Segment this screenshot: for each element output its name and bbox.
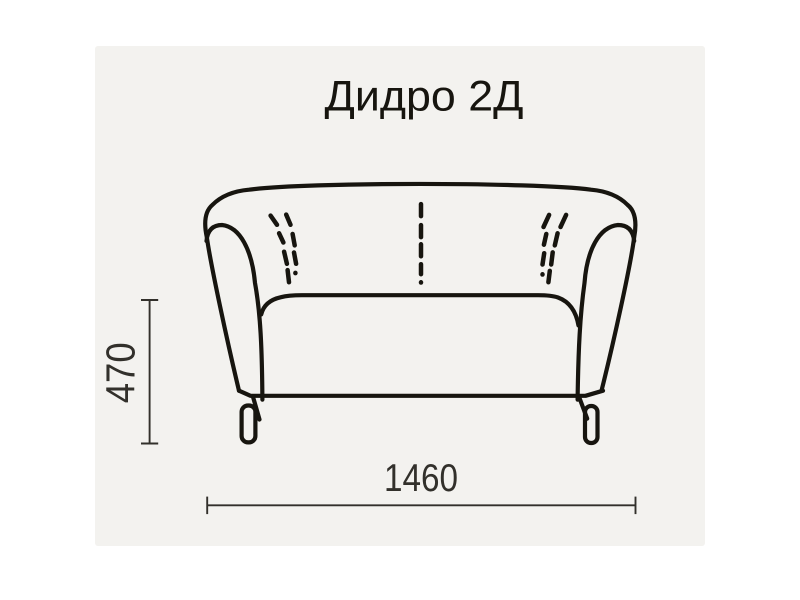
svg-text:470: 470 (98, 342, 144, 403)
svg-text:Дидро 2Д: Дидро 2Д (325, 73, 524, 121)
svg-text:1460: 1460 (384, 457, 458, 500)
